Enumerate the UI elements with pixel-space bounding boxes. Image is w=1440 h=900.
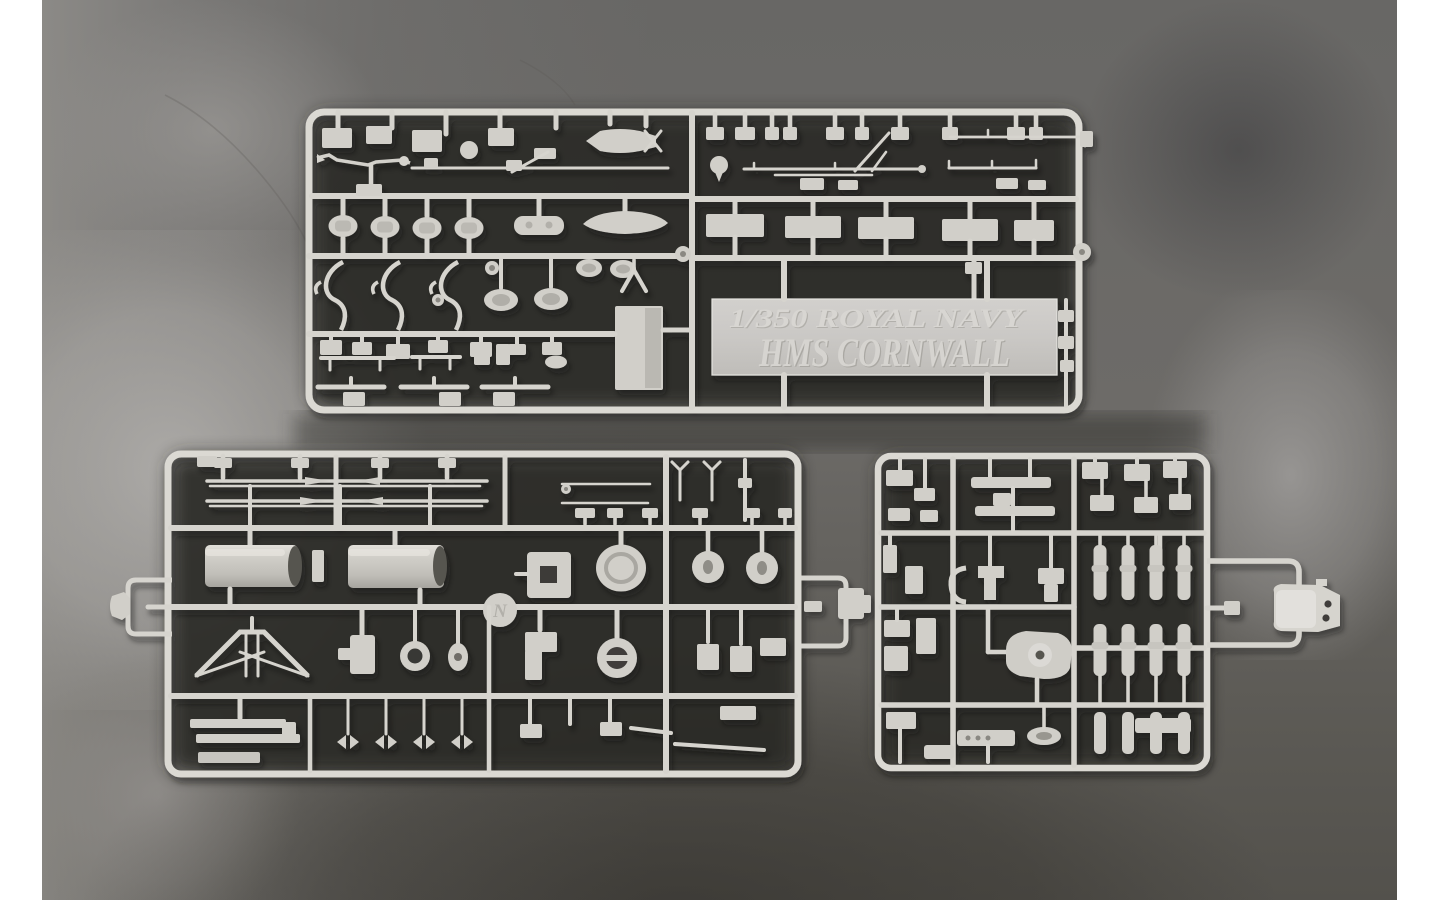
svg-text:N: N [492, 601, 508, 622]
svg-text:HMS CORNWALL: HMS CORNWALL [758, 330, 1010, 375]
svg-text:1/350 ROYAL NAVY: 1/350 ROYAL NAVY [729, 304, 1026, 333]
